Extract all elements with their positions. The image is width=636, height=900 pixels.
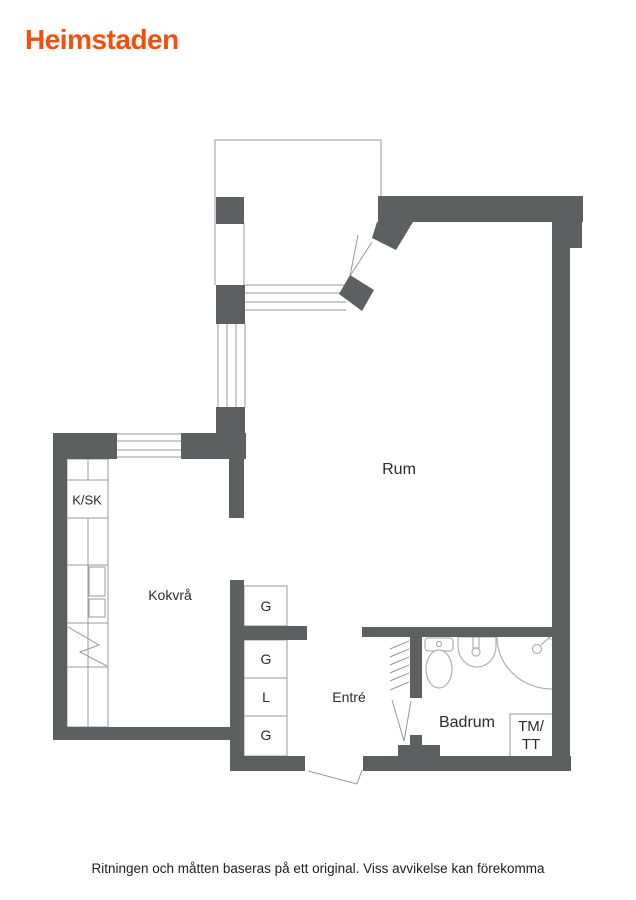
closet-label-g-mid: G: [261, 652, 272, 666]
closet-label-g-bottom: G: [261, 728, 272, 742]
bathroom-door-swing: [392, 700, 411, 741]
floorplan-page: Heimstaden: [0, 0, 636, 900]
wall-stairwell-stub: [216, 197, 244, 224]
washer-dryer-label-line1: TM/: [518, 718, 544, 736]
sink-icon: [458, 637, 496, 667]
shower-curtain-arc-icon: [497, 637, 552, 689]
toilet-bowl-icon: [426, 650, 452, 688]
wall-kitchen-south: [53, 727, 244, 740]
wall-kitchen-north-west: [53, 433, 117, 459]
window-kitchen: [117, 434, 181, 457]
wall-west: [53, 459, 67, 740]
washer-dryer-label: TM/ TT: [518, 718, 544, 754]
wall-window-pier-south: [216, 407, 245, 433]
floorplan-drawing: [0, 0, 636, 900]
room-label-entre: Entré: [332, 690, 365, 704]
toilet-tank-icon: [425, 638, 453, 651]
wall-window-pier-north: [216, 285, 245, 324]
wall-entry-door-jamb-south: [339, 275, 374, 311]
closet-label-ksk: K/SK: [72, 494, 102, 507]
wall-kitchen-north-east: [181, 433, 246, 459]
wall-closet-divider: [244, 626, 307, 640]
appliance-front: [89, 599, 105, 617]
coat-rack-hatching: [390, 641, 409, 690]
shower-head-icon: [533, 645, 542, 654]
closet-label-l: L: [262, 690, 270, 704]
walls: [53, 196, 583, 771]
wall-bathroom-north: [362, 627, 553, 637]
room-label-rum: Rum: [382, 462, 416, 478]
wall-entry-door-jamb-north: [372, 222, 413, 250]
window-west-vertical: [218, 324, 245, 407]
apartment-entry-door-swing: [350, 235, 372, 276]
wall-south-east-segment: [363, 756, 571, 771]
window-north: [245, 285, 346, 310]
wall-kitchen-rum-divider: [229, 459, 244, 518]
bathroom-fixtures: [425, 632, 553, 689]
wall-bathroom-west: [410, 637, 422, 698]
appliance-front: [89, 567, 105, 596]
closet-label-g-top: G: [261, 599, 272, 613]
wall-bathroom-door-stub-horizontal: [398, 745, 440, 757]
washer-dryer-label-line2: TT: [518, 736, 544, 754]
wall-northeast-corner: [552, 196, 582, 248]
wall-south-west-segment: [230, 756, 305, 771]
front-door-swing: [308, 770, 362, 784]
wall-east: [552, 248, 570, 771]
room-label-badrum: Badrum: [439, 715, 495, 731]
room-label-kokvra: Kokvrå: [148, 588, 192, 602]
wall-closet-west: [230, 580, 244, 770]
disclaimer-text: Ritningen och måtten baseras på ett orig…: [0, 861, 636, 876]
